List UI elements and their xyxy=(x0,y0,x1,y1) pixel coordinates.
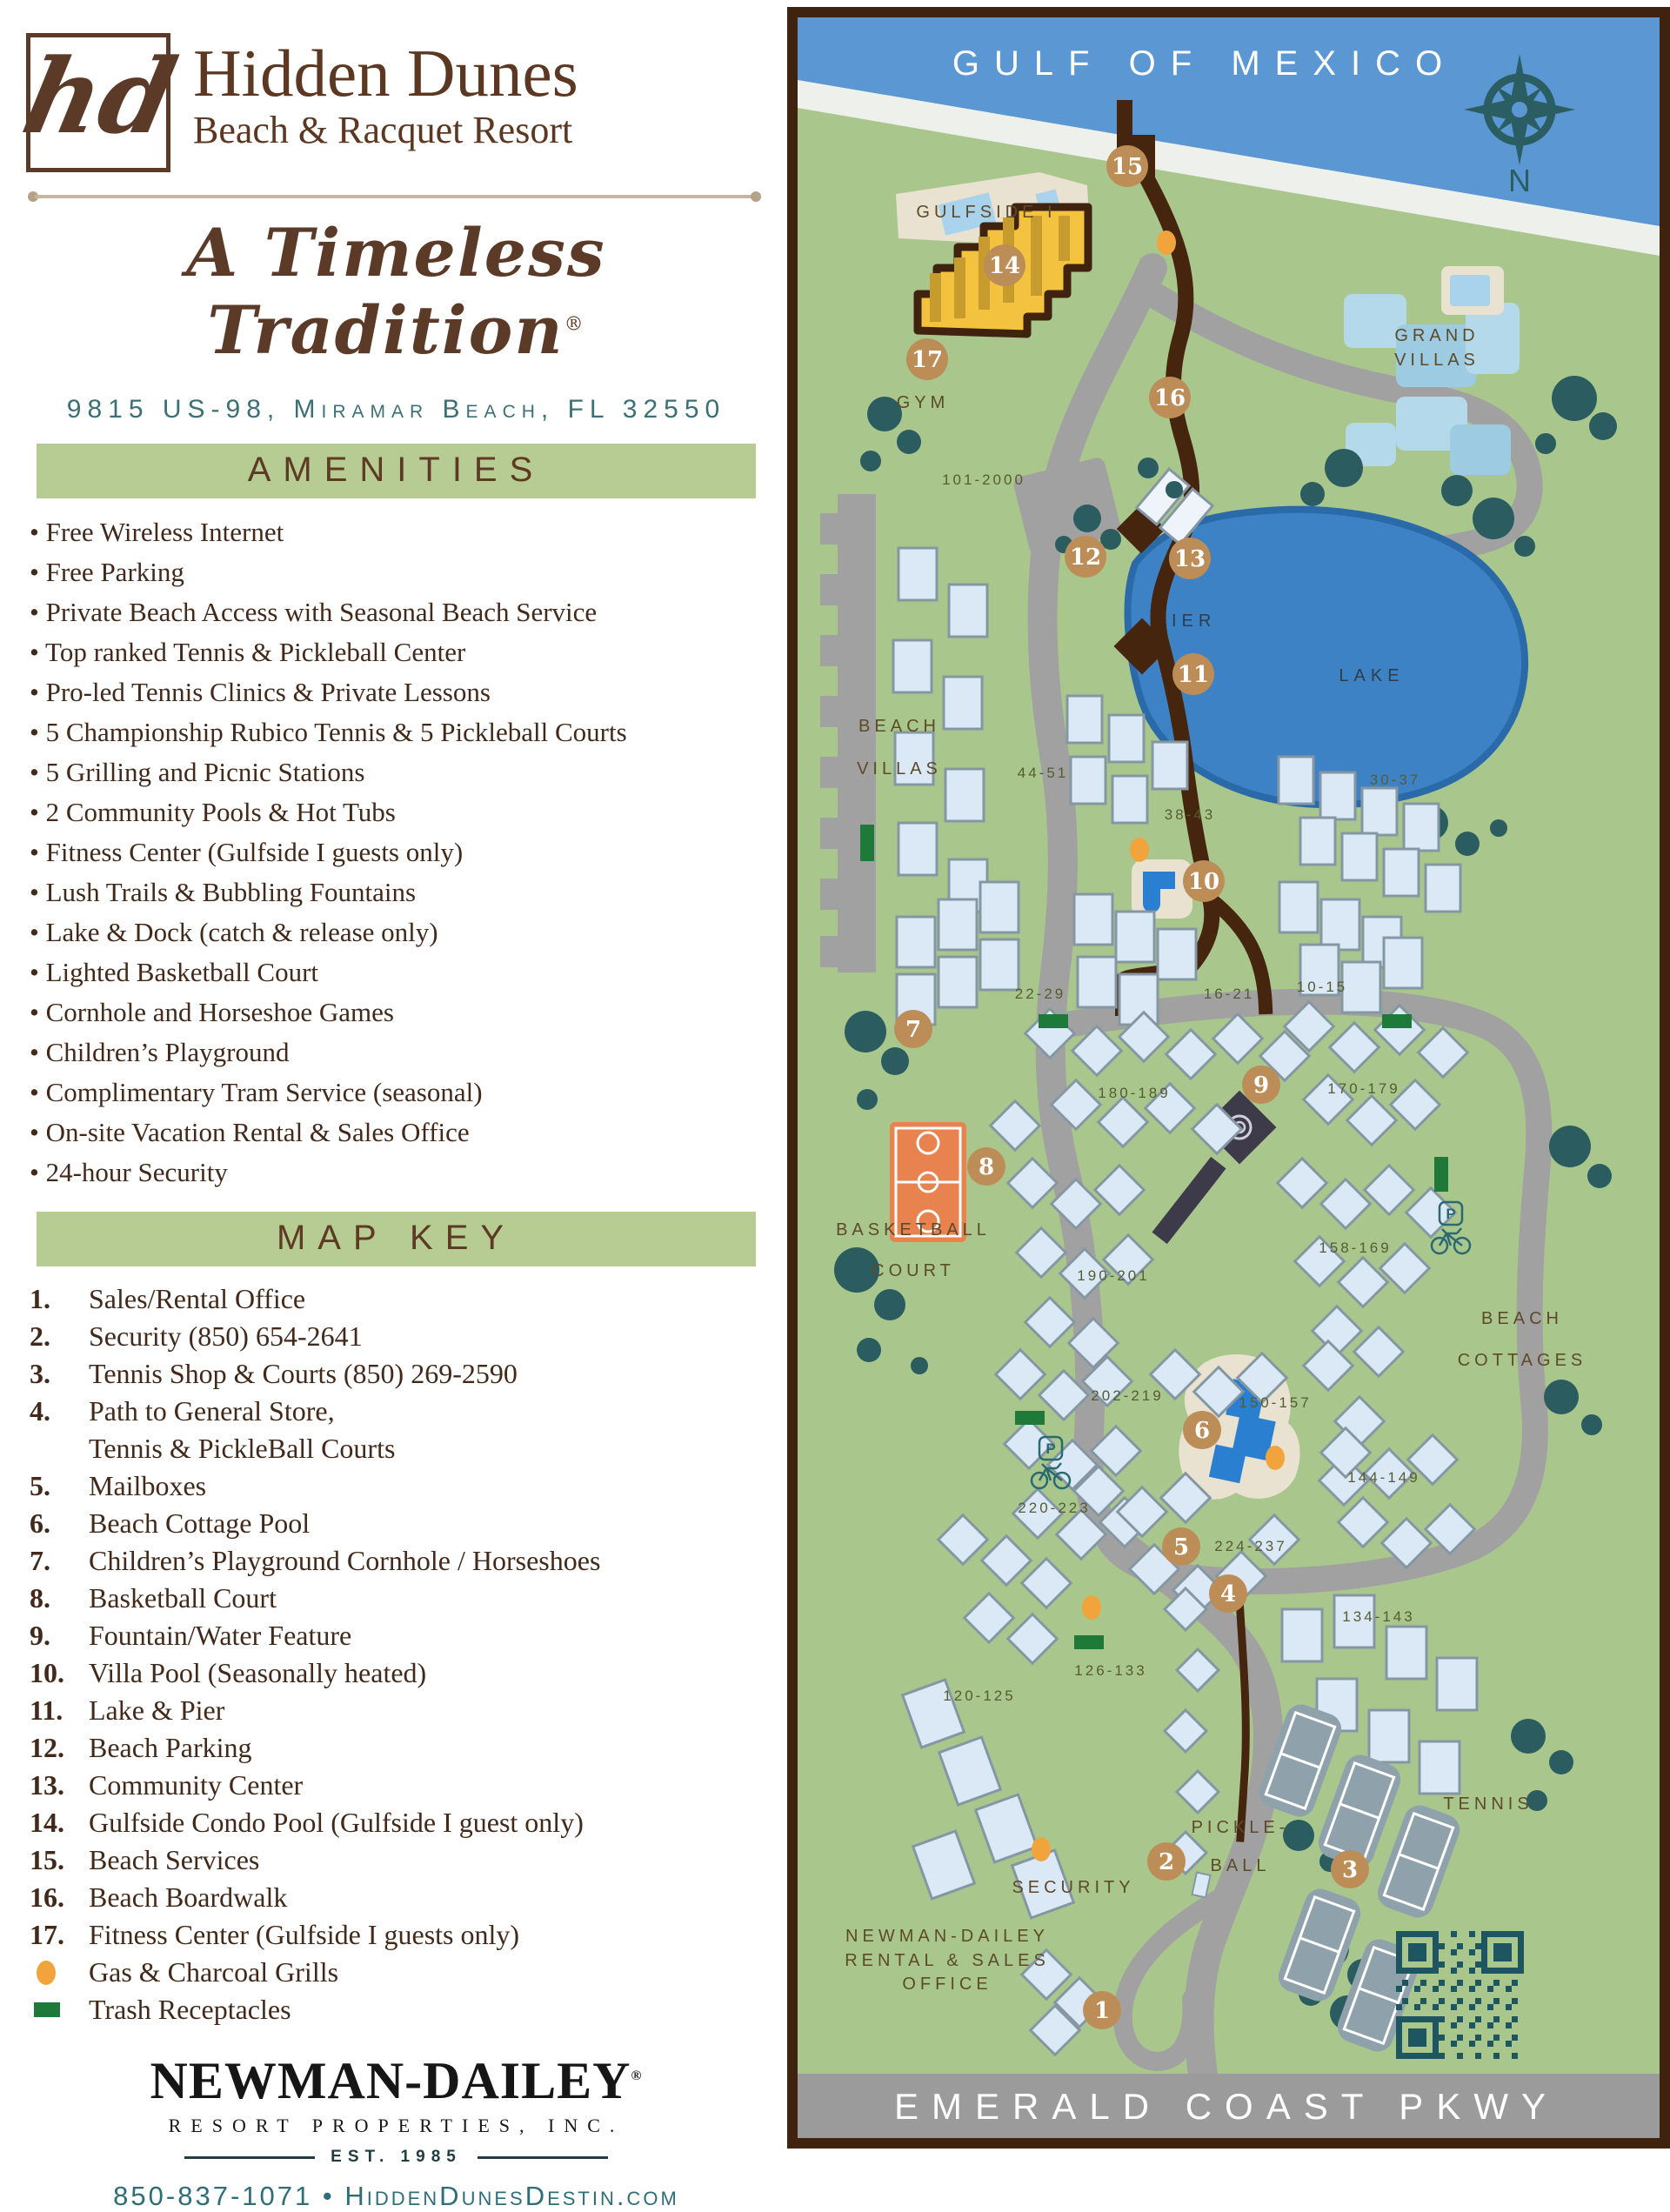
svg-text:14: 14 xyxy=(989,253,1020,279)
registered-mark: ® xyxy=(564,314,585,336)
amenity-item: 5 Grilling and Picnic Stations xyxy=(30,752,766,792)
qr-module xyxy=(1493,1998,1500,2004)
svg-text:6: 6 xyxy=(1194,1418,1210,1444)
basketball-court-label-2: COURT xyxy=(872,1261,955,1280)
qr-module xyxy=(1475,1998,1481,2004)
unit-range-label: 170-179 xyxy=(1327,1080,1399,1097)
qr-module xyxy=(1469,1949,1475,1955)
building xyxy=(980,882,1019,932)
beach-cottages-label-1: BEACH xyxy=(1481,1309,1563,1328)
key-number: 3. xyxy=(30,1355,89,1393)
svg-text:11: 11 xyxy=(1178,662,1209,688)
amenity-item: Lighted Basketball Court xyxy=(30,952,766,992)
tree xyxy=(1473,498,1514,539)
footer: NEWMAN-DAILEY® RESORT PROPERTIES, INC. E… xyxy=(26,2051,766,2212)
qr-module xyxy=(1469,1968,1475,1974)
building xyxy=(1404,804,1439,851)
key-label: Fitness Center (Gulfside I guests only) xyxy=(89,1916,766,1954)
unit-range-label: 202-219 xyxy=(1091,1387,1163,1404)
unit-range-label: 101-2000 xyxy=(942,471,1025,488)
legend-symbol xyxy=(30,2002,89,2017)
key-label-line2: Tennis & PickleBall Courts xyxy=(89,1430,766,1467)
unit-range-label: 120-125 xyxy=(943,1687,1015,1704)
building xyxy=(945,769,984,821)
unit-range-label: 30-37 xyxy=(1370,772,1420,788)
security-label: SECURITY xyxy=(1012,1878,1134,1897)
amenity-item: Top ranked Tennis & Pickleball Center xyxy=(30,632,766,672)
qr-module xyxy=(1475,1961,1481,1968)
building xyxy=(1067,696,1102,743)
map-marker-2: 2 xyxy=(1147,1842,1186,1881)
key-label: Gulfside Condo Pool (Gulfside I guest on… xyxy=(89,1804,766,1841)
map-marker-5: 5 xyxy=(1162,1527,1200,1566)
qr-module xyxy=(1506,1986,1512,1992)
tree xyxy=(874,1289,905,1320)
unit-range-label: 134-143 xyxy=(1342,1608,1414,1625)
key-number: 12. xyxy=(30,1729,89,1767)
amenity-item: Free Wireless Internet xyxy=(30,512,766,552)
svg-text:16: 16 xyxy=(1154,385,1186,411)
building xyxy=(1384,849,1419,896)
beach-villas-label-1: BEACH xyxy=(858,717,940,736)
established-text: EST. 1985 xyxy=(331,2148,462,2167)
qr-module xyxy=(1512,2035,1518,2041)
tree xyxy=(1325,449,1363,487)
building xyxy=(1437,1658,1477,1710)
svg-text:1: 1 xyxy=(1094,1998,1110,2024)
tree xyxy=(1544,1380,1579,1414)
map-key-list: 1.Sales/Rental Office 2.Security (850) 6… xyxy=(30,1280,766,2028)
key-label: Lake & Pier xyxy=(89,1692,766,1729)
resort-logo: hd Hidden Dunes Beach & Racquet Resort xyxy=(26,33,766,172)
map-marker-14: 14 xyxy=(984,244,1025,286)
tree xyxy=(1549,1750,1573,1774)
building xyxy=(897,917,935,967)
building xyxy=(1282,1609,1322,1661)
building xyxy=(1279,757,1313,804)
building xyxy=(1112,776,1147,823)
qr-module xyxy=(1487,2022,1493,2028)
qr-module xyxy=(1420,1980,1426,1986)
tree xyxy=(1455,832,1480,856)
qr-module xyxy=(1512,2053,1518,2059)
qr-module xyxy=(1469,2004,1475,2010)
map-key-row: 4.Path to General Store,Tennis & PickleB… xyxy=(30,1393,766,1467)
svg-text:P: P xyxy=(1446,1206,1455,1222)
est-line-right xyxy=(478,2156,608,2159)
building xyxy=(949,585,987,637)
tree xyxy=(1441,475,1473,506)
grill-icon xyxy=(1266,1446,1285,1470)
building xyxy=(1071,757,1106,804)
tree xyxy=(857,1089,878,1110)
svg-text:4: 4 xyxy=(1220,1581,1236,1607)
svg-text:5: 5 xyxy=(1173,1534,1189,1560)
key-label: Mailboxes xyxy=(89,1467,766,1505)
qr-module xyxy=(1475,1943,1481,1949)
qr-module xyxy=(1487,1986,1493,1992)
unit-range-label: 22-29 xyxy=(1015,986,1065,1002)
divider-rule xyxy=(28,191,761,202)
unit-range-label: 150-157 xyxy=(1239,1394,1311,1411)
key-label: Tennis Shop & Courts (850) 269-2590 xyxy=(89,1355,766,1393)
key-label: Beach Boardwalk xyxy=(89,1879,766,1916)
grill-icon xyxy=(1082,1595,1101,1620)
building xyxy=(1384,938,1422,988)
amenity-item: Free Parking xyxy=(30,552,766,592)
tree xyxy=(911,1357,928,1374)
qr-module xyxy=(1433,2004,1439,2010)
map-key-row: 12.Beach Parking xyxy=(30,1729,766,1767)
building xyxy=(1386,1627,1426,1679)
tennis-label: TENNIS xyxy=(1443,1794,1533,1814)
map-key-row: 2.Security (850) 654-2641 xyxy=(30,1318,766,1355)
amenity-item: 2 Community Pools & Hot Tubs xyxy=(30,792,766,832)
key-number: 16. xyxy=(30,1879,89,1916)
tree xyxy=(1581,1414,1602,1435)
map-key-row: 15.Beach Services xyxy=(30,1841,766,1879)
building xyxy=(980,939,1019,990)
tree xyxy=(1552,376,1597,421)
amenities-heading: AMENITIES xyxy=(37,444,756,498)
unit-range-label: 16-21 xyxy=(1204,986,1254,1002)
key-number: 7. xyxy=(30,1542,89,1580)
tree xyxy=(1300,482,1325,506)
svg-text:P: P xyxy=(1045,1440,1055,1457)
map-marker-15: 15 xyxy=(1106,145,1148,187)
office-label-3: OFFICE xyxy=(902,1975,992,1994)
amenity-item: Children’s Playground xyxy=(30,1032,766,1073)
emerald-coast-pkwy-label: EMERALD COAST PKWY xyxy=(894,2086,1559,2127)
amenity-item: Private Beach Access with Seasonal Beach… xyxy=(30,592,766,632)
unit-range-label: 144-149 xyxy=(1347,1469,1419,1486)
building xyxy=(1369,1710,1409,1762)
tree xyxy=(1138,458,1159,478)
qr-module xyxy=(1512,2016,1518,2022)
unit-range-label: 180-189 xyxy=(1098,1085,1170,1101)
qr-module xyxy=(1414,2004,1420,2010)
key-label: Beach Parking xyxy=(89,1729,766,1767)
website-url[interactable]: HiddenDunesDestin.com xyxy=(344,2181,678,2211)
qr-module xyxy=(1469,2041,1475,2047)
legend-row-grills: Gas & Charcoal Grills xyxy=(30,1954,766,1991)
map-marker-1: 1 xyxy=(1083,1991,1121,2029)
map-key-row: 1.Sales/Rental Office xyxy=(30,1280,766,1318)
trash-receptacle-icon xyxy=(1074,1635,1104,1649)
divider-dot-right xyxy=(751,191,761,202)
building xyxy=(1279,882,1318,932)
building xyxy=(944,677,982,729)
unit-range-label: 224-237 xyxy=(1214,1538,1286,1554)
grand-villas-label-1: GRAND xyxy=(1394,326,1479,345)
qr-module xyxy=(1402,1998,1408,2004)
svg-text:17: 17 xyxy=(912,347,943,373)
key-label: Path to General Store,Tennis & PickleBal… xyxy=(89,1393,766,1467)
building xyxy=(1419,1741,1460,1794)
qr-module xyxy=(1451,2004,1457,2010)
building xyxy=(1321,899,1359,950)
trash-receptacle-icon xyxy=(1015,1411,1045,1425)
unit-range-label: 38-43 xyxy=(1165,806,1215,823)
building xyxy=(898,823,937,875)
building xyxy=(1074,894,1112,945)
qr-module xyxy=(1493,1980,1500,1986)
office-label-2: RENTAL & SALES xyxy=(845,1951,1050,1970)
map-key-row: 13.Community Center xyxy=(30,1767,766,1804)
qr-module xyxy=(1433,1986,1439,1992)
villa-pool xyxy=(1132,859,1192,919)
beach-villas-label-2: VILLAS xyxy=(857,759,942,779)
map-key-row: 17.Fitness Center (Gulfside I guests onl… xyxy=(30,1916,766,1954)
building xyxy=(1320,772,1355,819)
divider-bar xyxy=(35,195,754,198)
qr-module xyxy=(1457,1961,1463,1968)
key-label: Villa Pool (Seasonally heated) xyxy=(89,1654,766,1692)
map-marker-7: 7 xyxy=(894,1010,932,1048)
basketball-court-label-1: BASKETBALL xyxy=(836,1220,991,1240)
qr-module xyxy=(1396,2004,1402,2010)
building xyxy=(898,548,937,600)
map-key-row: 6.Beach Cottage Pool xyxy=(30,1505,766,1542)
key-label: Sales/Rental Office xyxy=(89,1280,766,1318)
qr-module xyxy=(1487,2004,1493,2010)
qr-module xyxy=(1475,2016,1481,2022)
key-number: 1. xyxy=(30,1280,89,1318)
map-key-row: 3.Tennis Shop & Courts (850) 269-2590 xyxy=(30,1355,766,1393)
qr-module xyxy=(1451,2041,1457,2047)
unit-range-label: 158-169 xyxy=(1319,1240,1391,1256)
qr-module xyxy=(1475,1980,1481,1986)
company-logo: NEWMAN-DAILEY® xyxy=(26,2051,766,2111)
tagline: A Timeless Tradition® xyxy=(26,214,766,369)
resort-map-page: hd Hidden Dunes Beach & Racquet Resort A… xyxy=(0,0,1670,2190)
key-number: 8. xyxy=(30,1580,89,1617)
qr-module xyxy=(1506,2004,1512,2010)
key-number: 13. xyxy=(30,1767,89,1804)
map-key-row: 7.Children’s Playground Cornhole / Horse… xyxy=(30,1542,766,1580)
map-marker-8: 8 xyxy=(967,1147,1005,1186)
map-key-row: 11.Lake & Pier xyxy=(30,1692,766,1729)
building xyxy=(1116,912,1154,962)
resort-name: Hidden Dunes xyxy=(193,38,578,108)
resort-address: 9815 US-98, Miramar Beach, FL 32550 xyxy=(26,395,766,424)
est-line-left xyxy=(184,2156,315,2159)
tree xyxy=(1073,505,1101,532)
key-label: Basketball Court xyxy=(89,1580,766,1617)
key-label: Fountain/Water Feature xyxy=(89,1617,766,1654)
unit-range-label: 10-15 xyxy=(1297,979,1347,995)
map-key-heading: MAP KEY xyxy=(37,1212,756,1266)
qr-module xyxy=(1457,1943,1463,1949)
amenity-item: Lush Trails & Bubbling Fountains xyxy=(30,872,766,912)
legend-label: Trash Receptacles xyxy=(89,1991,291,2028)
key-label: Beach Cottage Pool xyxy=(89,1505,766,1542)
building xyxy=(893,640,932,692)
lake-label: LAKE xyxy=(1339,666,1404,685)
grill-icon xyxy=(37,1961,56,1985)
qr-module xyxy=(1469,1986,1475,1992)
map-key-row: 9.Fountain/Water Feature xyxy=(30,1617,766,1654)
key-label-line1: Path to General Store, xyxy=(89,1395,335,1427)
tree xyxy=(845,1011,886,1053)
key-number: 14. xyxy=(30,1804,89,1841)
qr-module xyxy=(1439,1961,1445,1968)
map-key-row: 14.Gulfside Condo Pool (Gulfside I guest… xyxy=(30,1804,766,1841)
qr-module xyxy=(1475,2035,1481,2041)
contact-line: 850-837-1071 • HiddenDunesDestin.com xyxy=(26,2181,766,2212)
trash-receptacle-icon xyxy=(1382,1014,1412,1028)
map-marker-6: 6 xyxy=(1183,1411,1221,1449)
qr-module xyxy=(1512,1980,1518,1986)
tree xyxy=(1514,536,1535,557)
key-label: Beach Services xyxy=(89,1841,766,1879)
map-marker-10: 10 xyxy=(1183,860,1225,902)
company-registered-mark: ® xyxy=(631,2068,643,2083)
map-marker-12: 12 xyxy=(1065,536,1106,578)
key-number: 6. xyxy=(30,1505,89,1542)
amenities-list: Free Wireless Internet Free Parking Priv… xyxy=(30,512,766,1193)
key-label: Community Center xyxy=(89,1767,766,1804)
tree xyxy=(881,1047,909,1075)
tree xyxy=(857,1338,881,1362)
map-key-row: 5.Mailboxes xyxy=(30,1467,766,1505)
established-row: EST. 1985 xyxy=(26,2148,766,2167)
trash-receptacle-icon xyxy=(1434,1157,1448,1192)
qr-module xyxy=(1493,2053,1500,2059)
tree xyxy=(1587,1164,1612,1188)
qr-module xyxy=(1457,2035,1463,2041)
map-key-row: 10.Villa Pool (Seasonally heated) xyxy=(30,1654,766,1692)
compass-north-label: N xyxy=(1508,163,1531,198)
company-name: NEWMAN-DAILEY xyxy=(150,2052,631,2109)
gulfside-label: GULFSIDE I xyxy=(916,203,1056,222)
map-marker-9: 9 xyxy=(1242,1066,1280,1104)
qr-module xyxy=(1439,1943,1445,1949)
qr-module xyxy=(1487,2041,1493,2047)
amenity-item: 5 Championship Rubico Tennis & 5 Pickleb… xyxy=(30,712,766,752)
amenity-item: Lake & Dock (catch & release only) xyxy=(30,912,766,952)
map-key-row: 16.Beach Boardwalk xyxy=(30,1879,766,1916)
svg-text:7: 7 xyxy=(905,1017,921,1043)
trash-icon xyxy=(34,2002,60,2017)
svg-text:2: 2 xyxy=(1159,1849,1174,1875)
qr-module xyxy=(1402,1980,1408,1986)
tree xyxy=(1511,1719,1546,1754)
phone-number: 850-837-1071 xyxy=(113,2181,312,2211)
key-number: 5. xyxy=(30,1467,89,1505)
svg-text:12: 12 xyxy=(1070,545,1101,571)
tree xyxy=(1549,1126,1591,1167)
map-marker-4: 4 xyxy=(1209,1574,1247,1613)
qr-module xyxy=(1451,1968,1457,1974)
qr-module xyxy=(1512,1998,1518,2004)
key-label: Children’s Playground Cornhole / Horsesh… xyxy=(89,1542,766,1580)
grand-villas-label-2: VILLAS xyxy=(1394,351,1480,370)
company-subtitle: RESORT PROPERTIES, INC. xyxy=(26,2115,766,2137)
legend-label: Gas & Charcoal Grills xyxy=(89,1954,338,1991)
qr-module xyxy=(1457,2016,1463,2022)
qr-module xyxy=(1439,2016,1445,2022)
qr-module xyxy=(1451,1931,1457,1937)
building xyxy=(1300,818,1335,865)
qr-module xyxy=(1506,2022,1512,2028)
building xyxy=(1152,742,1187,789)
map-marker-17: 17 xyxy=(906,338,948,380)
amenity-item: Cornhole and Horseshoe Games xyxy=(30,992,766,1032)
svg-text:13: 13 xyxy=(1174,546,1206,572)
unit-range-label: 220-223 xyxy=(1018,1500,1090,1516)
building xyxy=(1426,865,1460,912)
building xyxy=(939,899,977,950)
building xyxy=(939,957,977,1007)
contact-separator: • xyxy=(323,2181,335,2211)
tree xyxy=(897,430,921,454)
qr-module xyxy=(1439,1998,1445,2004)
key-label: Security (850) 654-2641 xyxy=(89,1318,766,1355)
qr-module xyxy=(1451,1949,1457,1955)
svg-text:3: 3 xyxy=(1342,1857,1358,1883)
tagline-text: A Timeless Tradition xyxy=(186,214,605,369)
qr-module xyxy=(1475,2053,1481,2059)
brand-text: Hidden Dunes Beach & Racquet Resort xyxy=(193,33,578,153)
amenity-item: Fitness Center (Gulfside I guests only) xyxy=(30,832,766,872)
qr-module xyxy=(1451,2022,1457,2028)
qr-module xyxy=(1493,2035,1500,2041)
amenity-item: On-site Vacation Rental & Sales Office xyxy=(30,1113,766,1153)
resort-subtitle: Beach & Racquet Resort xyxy=(193,108,578,153)
unit-range-label: 126-133 xyxy=(1074,1662,1146,1679)
amenity-item: Complimentary Tram Service (seasonal) xyxy=(30,1073,766,1113)
info-panel: hd Hidden Dunes Beach & Racquet Resort A… xyxy=(0,0,787,2190)
key-number: 15. xyxy=(30,1841,89,1879)
building xyxy=(1158,929,1196,979)
qr-module xyxy=(1506,2041,1512,2047)
svg-text:9: 9 xyxy=(1253,1073,1269,1099)
qr-module xyxy=(1493,2016,1500,2022)
building xyxy=(1342,833,1377,880)
building xyxy=(1078,957,1116,1007)
tree xyxy=(1589,412,1617,440)
key-number: 4. xyxy=(30,1393,89,1467)
qr-module xyxy=(1396,1986,1402,1992)
key-number: 9. xyxy=(30,1617,89,1654)
building xyxy=(1342,962,1380,1012)
tree xyxy=(1535,433,1556,454)
unit-range-label: 190-201 xyxy=(1077,1267,1149,1284)
gulf-of-mexico-label: GULF OF MEXICO xyxy=(952,44,1457,83)
resort-map: GULF OF MEXICO N LAKE P xyxy=(787,7,1670,2190)
key-number: 17. xyxy=(30,1916,89,1954)
key-number: 11. xyxy=(30,1692,89,1729)
hd-monogram-letters: hd xyxy=(14,36,186,157)
qr-module xyxy=(1439,1980,1445,1986)
amenity-item: 24-hour Security xyxy=(30,1153,766,1193)
tree xyxy=(860,451,881,471)
qr-module xyxy=(1469,2022,1475,2028)
legend-symbol xyxy=(30,1961,89,1985)
svg-text:10: 10 xyxy=(1188,869,1219,895)
hd-monogram-logo: hd xyxy=(26,33,170,172)
pickleball-label-2: BALL xyxy=(1211,1856,1271,1875)
tree xyxy=(1490,819,1507,837)
building xyxy=(1109,715,1144,762)
building xyxy=(1362,788,1397,835)
gym-label: GYM xyxy=(897,393,950,412)
trash-receptacle-icon xyxy=(1039,1014,1068,1028)
qr-module xyxy=(1414,1986,1420,1992)
legend-row-trash: Trash Receptacles xyxy=(30,1991,766,2028)
map-marker-3: 3 xyxy=(1331,1850,1369,1888)
